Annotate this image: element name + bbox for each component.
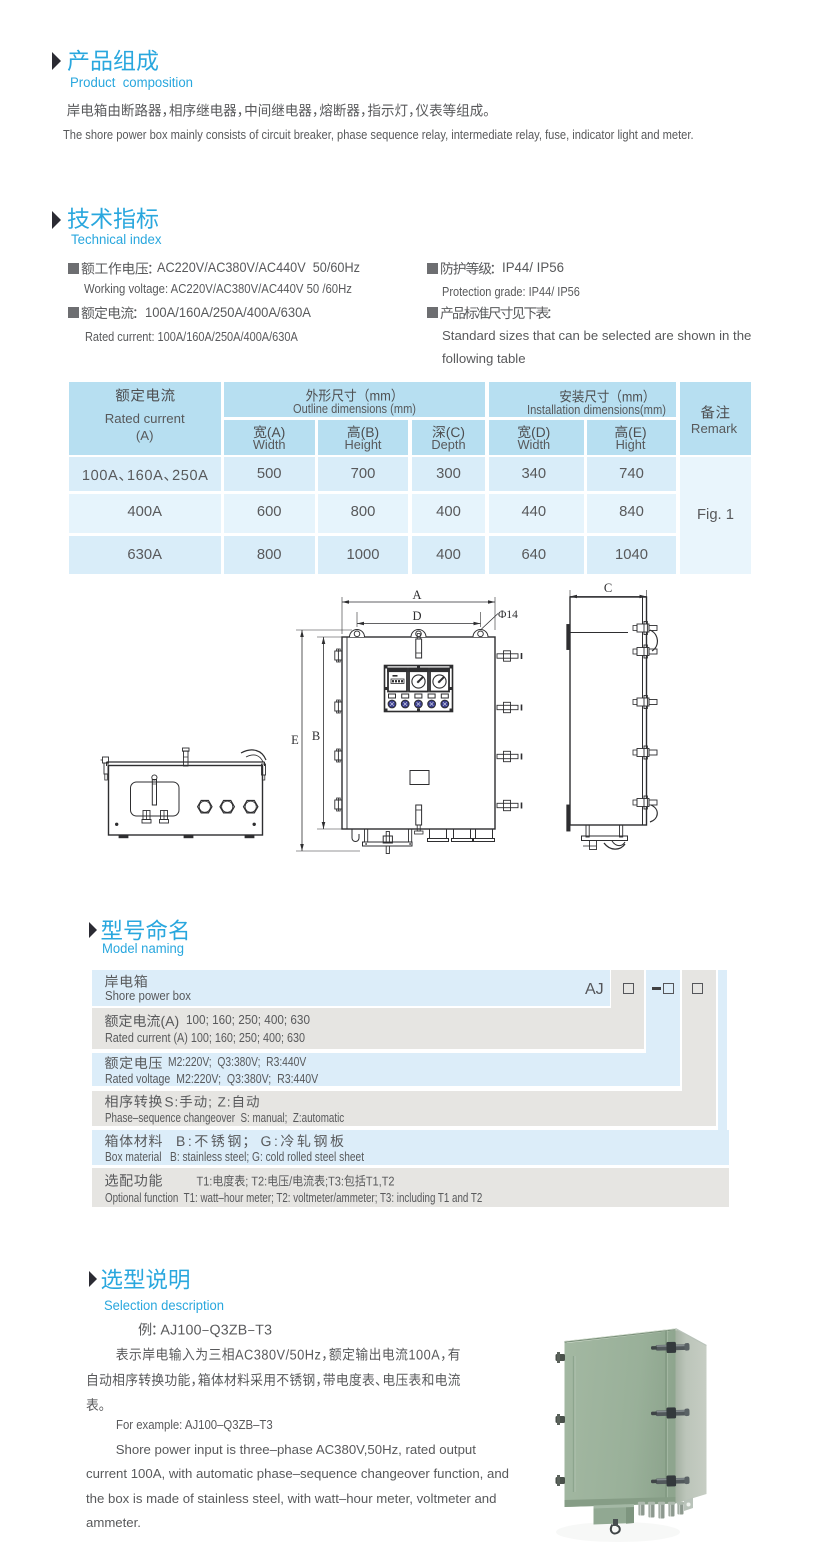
svg-text:Φ14: Φ14 [498,609,518,621]
svg-text:D: D [412,609,421,623]
svg-text:B: B [312,729,320,743]
svg-text:C: C [604,581,612,595]
svg-text:E: E [291,733,299,747]
svg-text:A: A [412,588,421,602]
